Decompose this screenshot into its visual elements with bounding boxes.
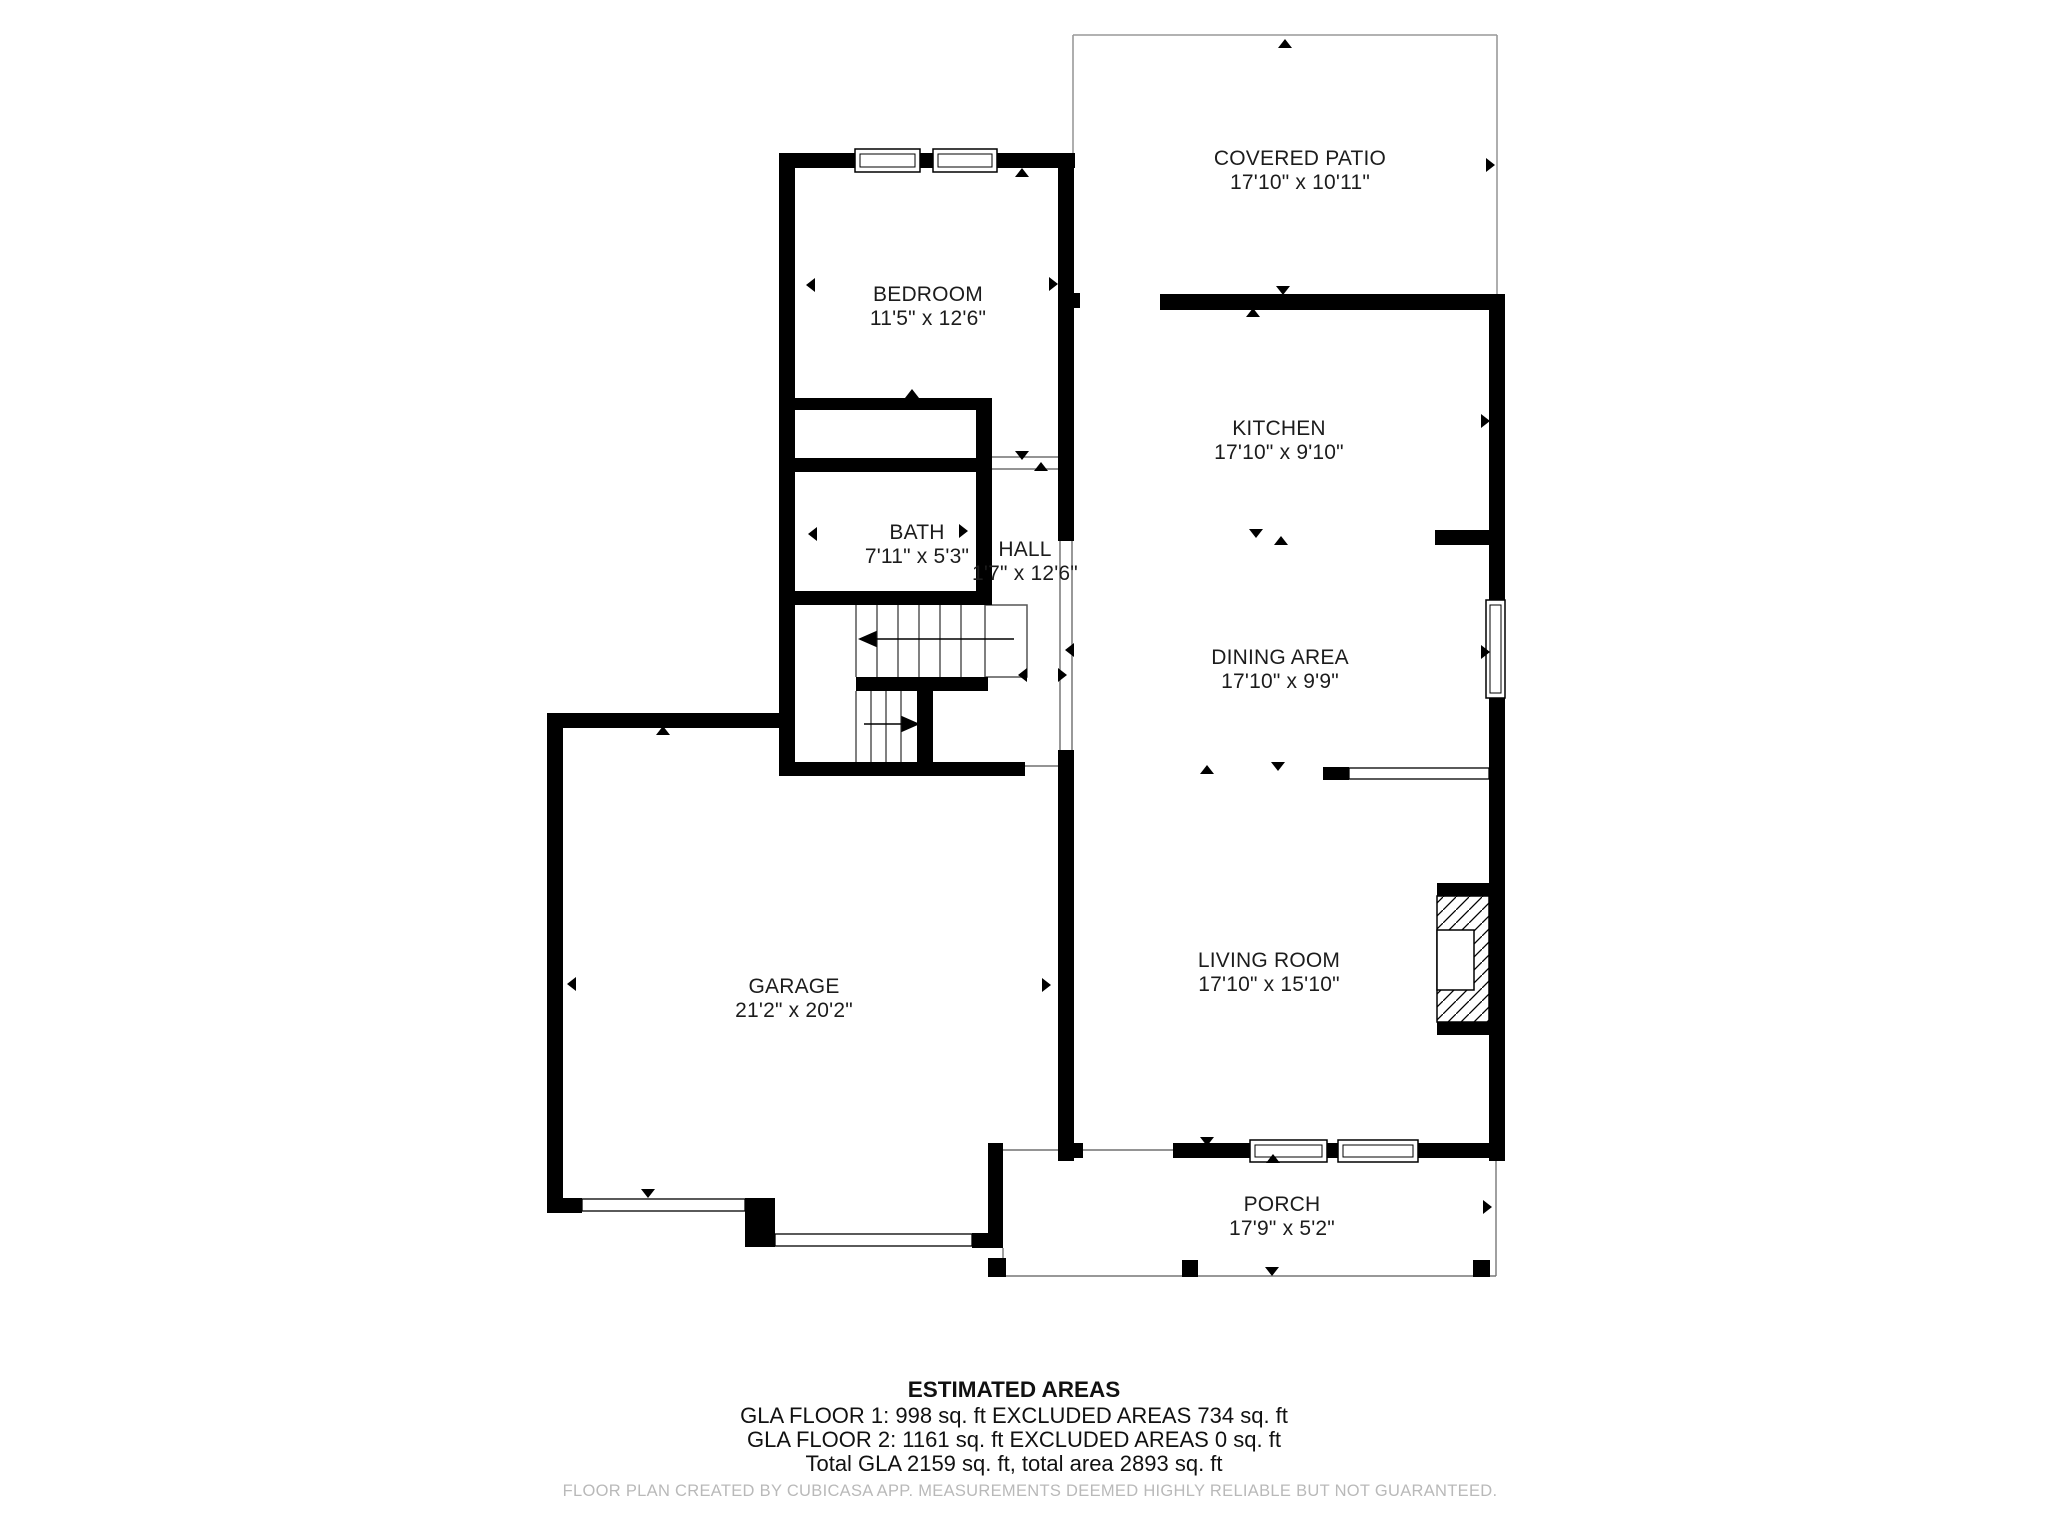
room-label-bath: BATH 7'11" x 5'3": [865, 521, 969, 569]
dimension-tick: [1483, 1200, 1492, 1214]
room-name: LIVING ROOM: [1198, 949, 1340, 973]
room-name: KITCHEN: [1214, 417, 1344, 441]
bedroom-window: [933, 149, 997, 172]
room-name: GARAGE: [735, 975, 853, 999]
measurement-ticks: [567, 39, 1495, 1276]
room-name: HALL: [972, 538, 1078, 562]
room-dims: 7'11" x 5'3": [865, 545, 969, 569]
dimension-tick: [1271, 762, 1285, 771]
room-label-porch: PORCH 17'9" x 5'2": [1229, 1193, 1335, 1241]
dimension-tick: [1276, 286, 1290, 295]
room-dims: 21'2" x 20'2": [735, 999, 853, 1023]
room-dims: 11'5" x 12'6": [870, 307, 986, 331]
dimension-tick: [806, 278, 815, 292]
living-room-window: [1338, 1140, 1418, 1162]
estimated-areas-line: Total GLA 2159 sq. ft, total area 2893 s…: [740, 1452, 1288, 1476]
garage-door: [582, 1199, 972, 1246]
room-label-covered-patio: COVERED PATIO 17'10" x 10'11": [1214, 147, 1386, 195]
dining-window: [1486, 600, 1505, 698]
room-label-bedroom: BEDROOM 11'5" x 12'6": [870, 283, 986, 331]
estimated-areas-line: GLA FLOOR 1: 998 sq. ft EXCLUDED AREAS 7…: [740, 1404, 1288, 1428]
room-label-kitchen: KITCHEN 17'10" x 9'10": [1214, 417, 1344, 465]
dimension-tick: [1015, 168, 1029, 177]
floor-plan-page: COVERED PATIO 17'10" x 10'11" BEDROOM 11…: [0, 0, 2048, 1536]
estimated-areas-block: ESTIMATED AREAS GLA FLOOR 1: 998 sq. ft …: [740, 1378, 1288, 1476]
dining-railing: [1349, 768, 1489, 779]
room-label-garage: GARAGE 21'2" x 20'2": [735, 975, 853, 1023]
room-label-hall: HALL 1'7" x 12'6": [972, 538, 1078, 586]
room-dims: 17'10" x 9'9": [1211, 670, 1349, 694]
floor-plan-drawing: [0, 0, 2048, 1536]
room-dims: 17'9" x 5'2": [1229, 1217, 1335, 1241]
room-dims: 17'10" x 15'10": [1198, 973, 1340, 997]
room-name: COVERED PATIO: [1214, 147, 1386, 171]
dimension-tick: [1015, 451, 1029, 460]
walls: [547, 153, 1505, 1248]
room-dims: 17'10" x 10'11": [1214, 171, 1386, 195]
room-name: PORCH: [1229, 1193, 1335, 1217]
living-room-window: [1250, 1140, 1327, 1162]
room-dims: 1'7" x 12'6": [972, 562, 1078, 586]
dimension-tick: [1249, 529, 1263, 538]
dimension-tick: [1049, 277, 1058, 291]
room-name: BEDROOM: [870, 283, 986, 307]
footer-disclaimer: FLOOR PLAN CREATED BY CUBICASA APP. MEAS…: [563, 1482, 1498, 1501]
room-label-dining-area: DINING AREA 17'10" x 9'9": [1211, 646, 1349, 694]
room-name: BATH: [865, 521, 969, 545]
estimated-areas-line: GLA FLOOR 2: 1161 sq. ft EXCLUDED AREAS …: [740, 1428, 1288, 1452]
dimension-tick: [1274, 536, 1288, 545]
dimension-tick: [567, 977, 576, 991]
estimated-areas-title: ESTIMATED AREAS: [740, 1378, 1288, 1402]
dimension-tick: [1481, 414, 1490, 428]
fireplace: [1437, 883, 1489, 1035]
dimension-tick: [641, 1189, 655, 1198]
room-name: DINING AREA: [1211, 646, 1349, 670]
porch-posts: [988, 1258, 1490, 1277]
room-dims: 17'10" x 9'10": [1214, 441, 1344, 465]
dimension-tick: [1278, 39, 1292, 48]
room-label-living-room: LIVING ROOM 17'10" x 15'10": [1198, 949, 1340, 997]
dimension-tick: [905, 389, 919, 398]
firebox: [1437, 930, 1474, 990]
dimension-tick: [1265, 1267, 1279, 1276]
dimension-tick: [1200, 765, 1214, 774]
dimension-tick: [1065, 643, 1074, 657]
dimension-tick: [1034, 462, 1048, 471]
dimension-tick: [1486, 158, 1495, 172]
dimension-tick: [1042, 978, 1051, 992]
dimension-tick: [1058, 668, 1067, 682]
dimension-tick: [808, 527, 817, 541]
bedroom-window: [855, 149, 920, 172]
